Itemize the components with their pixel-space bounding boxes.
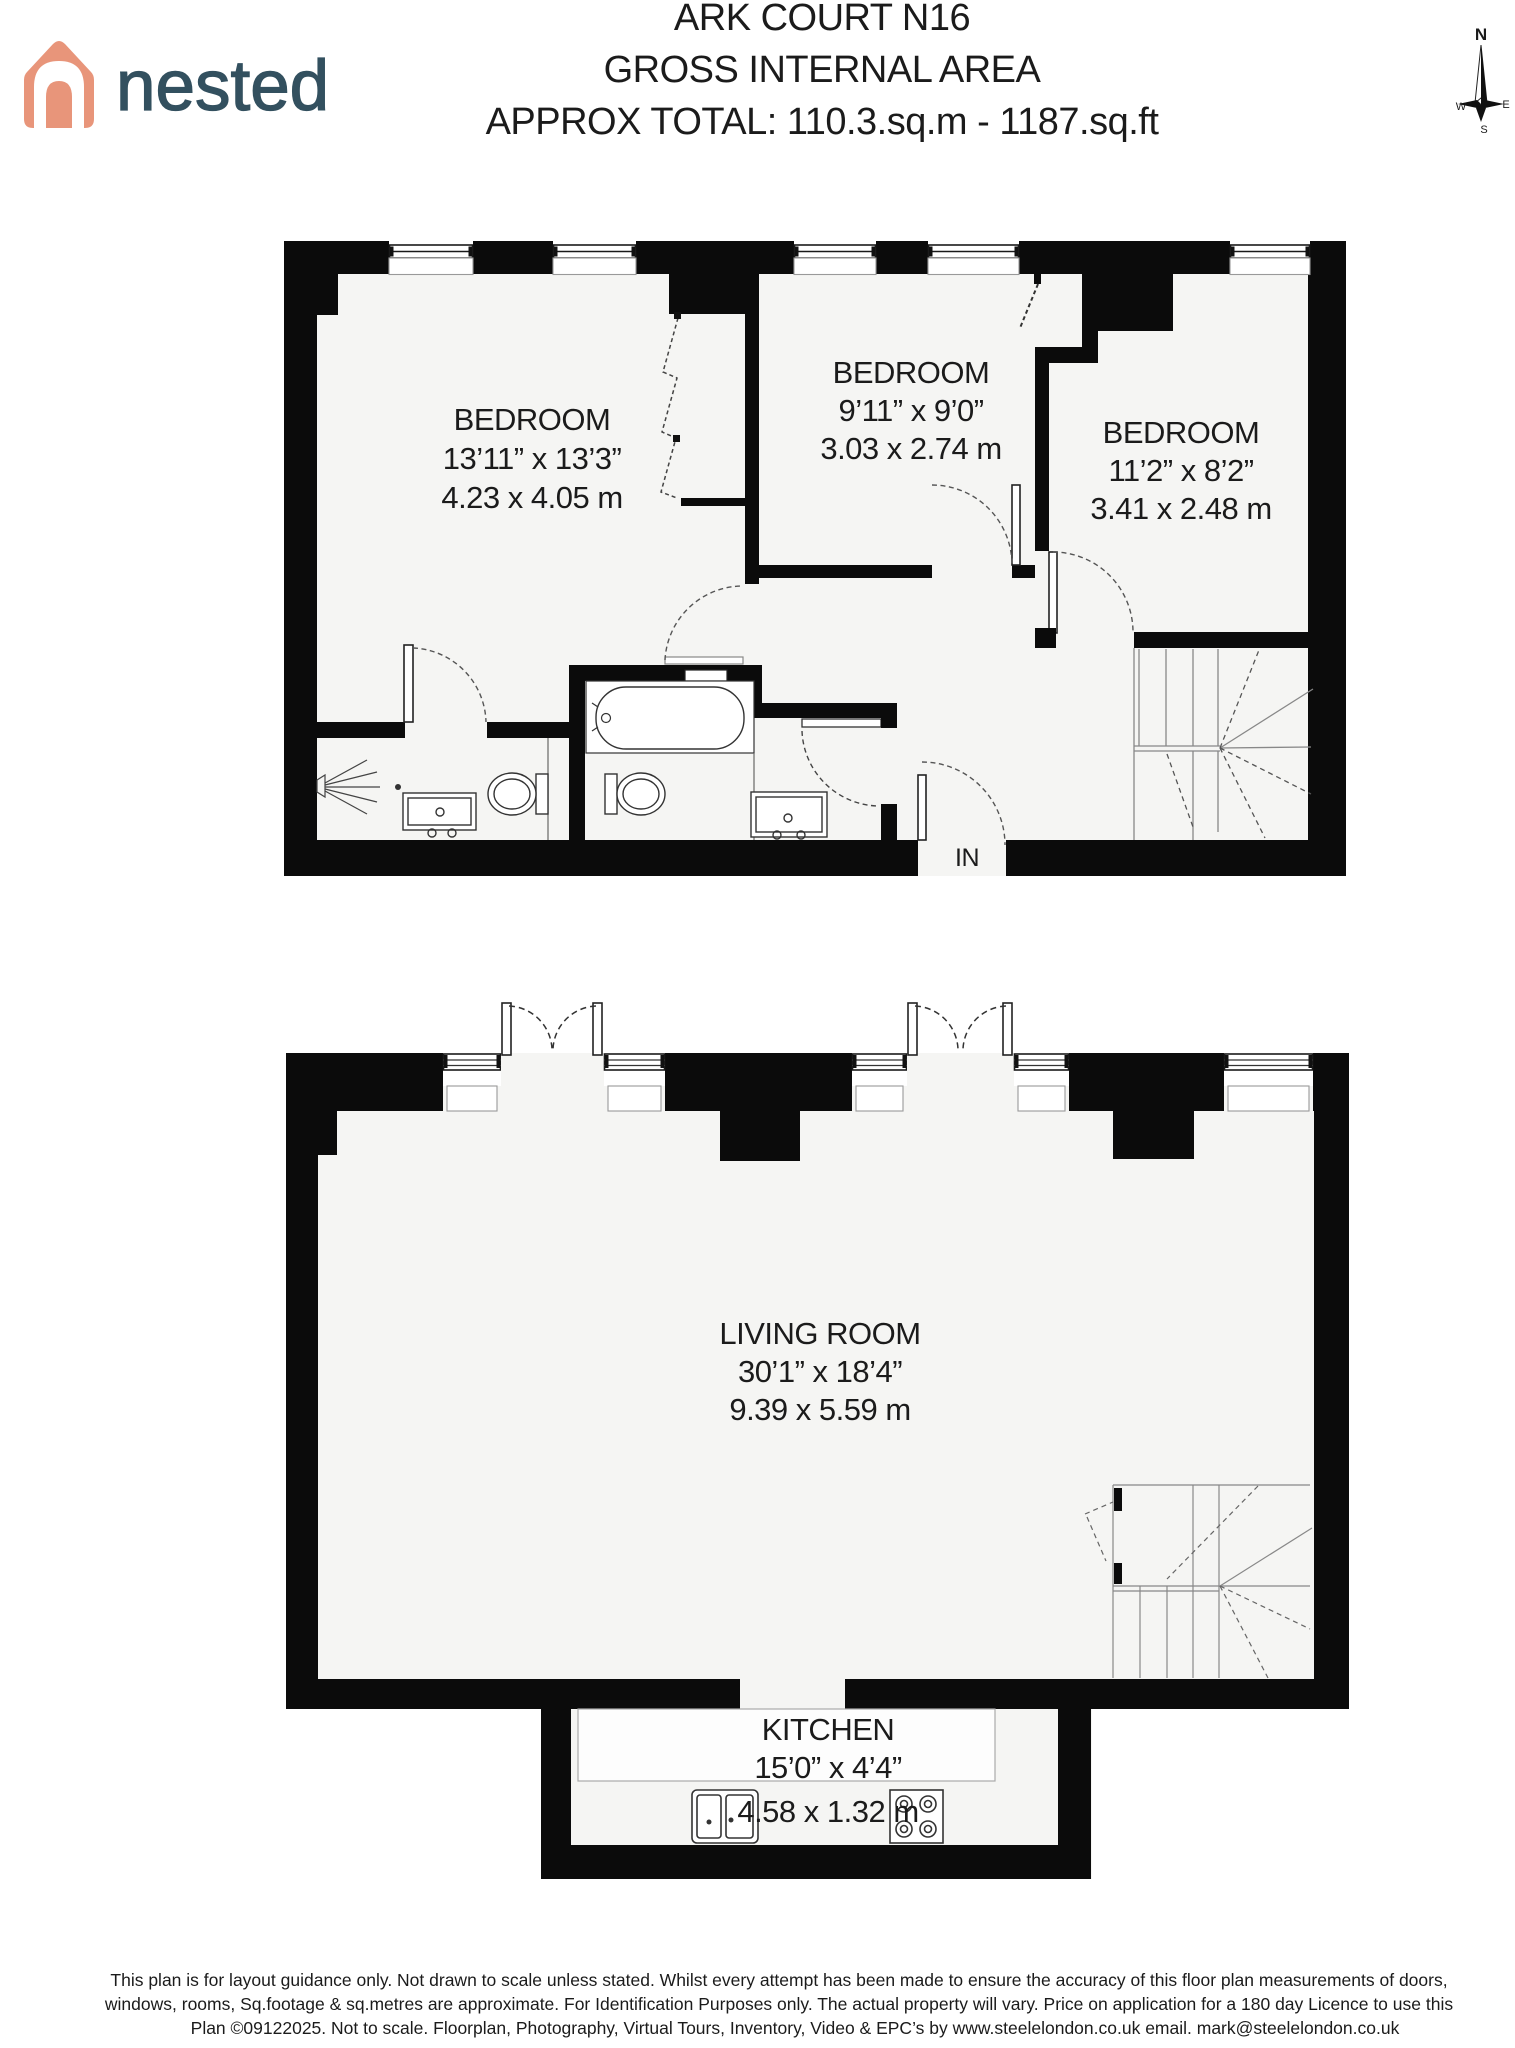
svg-text:9’11” x 9’0”: 9’11” x 9’0”	[838, 393, 983, 428]
svg-text:4.58 x 1.32 m: 4.58 x 1.32 m	[737, 1794, 918, 1829]
svg-text:9.39 x 5.59 m: 9.39 x 5.59 m	[729, 1392, 910, 1427]
svg-text:ARK COURT N16: ARK COURT N16	[674, 0, 970, 39]
svg-text:This plan is for layout guidan: This plan is for layout guidance only. N…	[110, 1970, 1447, 1990]
svg-text:E: E	[1502, 99, 1509, 111]
svg-text:nested: nested	[116, 47, 329, 126]
svg-text:4.23 x 4.05 m: 4.23 x 4.05 m	[441, 480, 622, 515]
svg-text:windows, rooms, Sq.footage & s: windows, rooms, Sq.footage & sq.metres a…	[104, 1994, 1453, 2014]
svg-text:KITCHEN: KITCHEN	[762, 1712, 895, 1747]
svg-text:N: N	[1475, 25, 1487, 44]
svg-text:IN: IN	[955, 844, 979, 872]
svg-text:APPROX TOTAL: 110.3.sq.m - 118: APPROX TOTAL: 110.3.sq.m - 1187.sq.ft	[486, 101, 1160, 143]
svg-text:LIVING ROOM: LIVING ROOM	[719, 1316, 920, 1351]
svg-text:BEDROOM: BEDROOM	[454, 402, 611, 437]
svg-text:W: W	[1456, 101, 1467, 113]
svg-text:3.03 x 2.74 m: 3.03 x 2.74 m	[820, 431, 1001, 466]
svg-text:S: S	[1480, 124, 1487, 136]
svg-text:GROSS INTERNAL AREA: GROSS INTERNAL AREA	[604, 49, 1042, 91]
svg-text:BEDROOM: BEDROOM	[1103, 415, 1260, 450]
svg-text:Plan ©09122025. Not to scale.: Plan ©09122025. Not to scale. Floorplan,…	[191, 2018, 1400, 2038]
svg-text:15’0” x 4’4”: 15’0” x 4’4”	[754, 1750, 902, 1785]
svg-text:11’2” x 8’2”: 11’2” x 8’2”	[1108, 453, 1253, 488]
svg-text:13’11” x 13’3”: 13’11” x 13’3”	[443, 441, 622, 476]
svg-text:3.41 x 2.48 m: 3.41 x 2.48 m	[1090, 491, 1271, 526]
svg-text:30’1” x 18’4”: 30’1” x 18’4”	[738, 1354, 902, 1389]
svg-text:BEDROOM: BEDROOM	[833, 355, 990, 390]
